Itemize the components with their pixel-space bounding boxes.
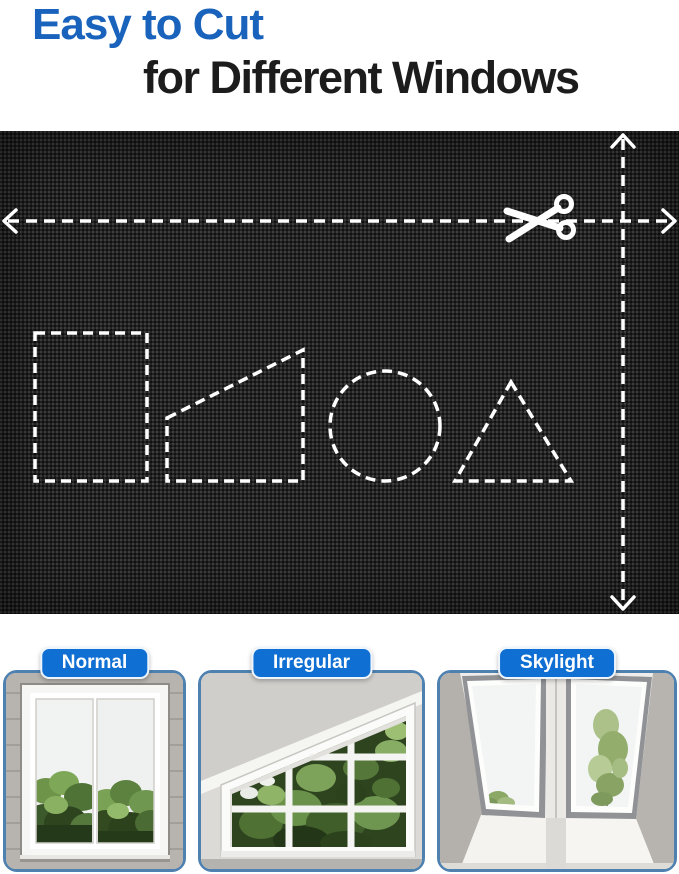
cut-shape-rectangle <box>35 333 147 481</box>
cut-shape-trapezoid <box>167 350 303 481</box>
normal-window-illustration <box>6 673 183 869</box>
window-photo-skylight <box>440 673 674 869</box>
product-infographic: Easy to Cut for Different Windows <box>0 0 679 874</box>
cut-shapes <box>35 333 571 481</box>
scissors-icon <box>507 197 574 240</box>
window-label-skylight: Skylight <box>498 647 616 679</box>
cut-shape-triangle <box>455 382 571 481</box>
window-photo-normal <box>6 673 183 869</box>
window-label-normal: Normal <box>40 647 149 679</box>
window-card-irregular: Irregular <box>198 670 425 872</box>
dashed-height-line <box>612 135 634 609</box>
window-card-skylight: Skylight <box>437 670 677 872</box>
headline-line2: for Different Windows <box>143 54 579 101</box>
blackout-fabric-swatch <box>0 131 679 614</box>
window-card-normal: Normal <box>3 670 186 872</box>
irregular-window-illustration <box>201 673 422 869</box>
headline-line1: Easy to Cut <box>32 2 263 48</box>
cut-shape-circle <box>330 371 440 481</box>
skylight-window-illustration <box>440 673 674 869</box>
window-label-irregular: Irregular <box>251 647 372 679</box>
window-photo-irregular <box>201 673 422 869</box>
cutting-guide-overlay <box>0 131 679 614</box>
window-type-cards: Normal <box>0 670 679 872</box>
